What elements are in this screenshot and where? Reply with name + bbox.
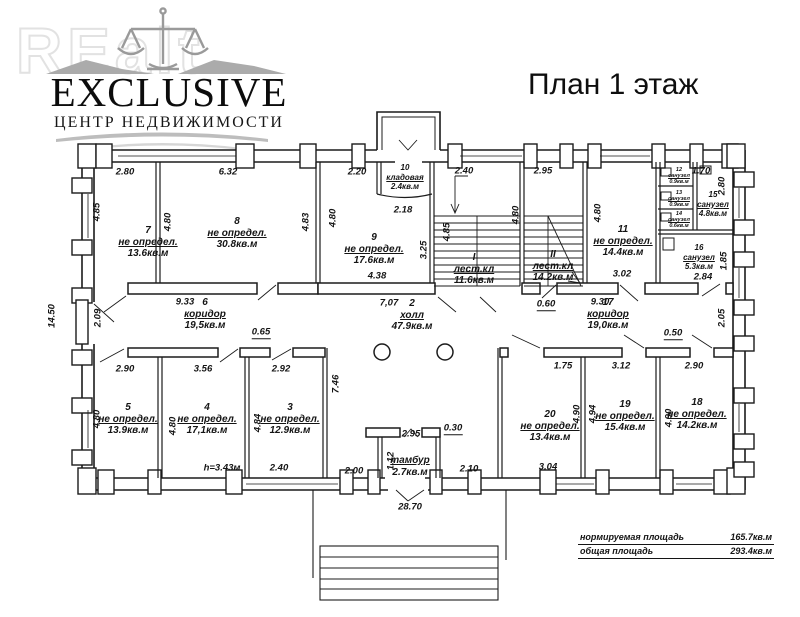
floor-plan-page: REalt EXCLUSIVE ЦЕНТР Н <box>0 0 800 617</box>
room-area: 17.6кв.м <box>344 255 403 267</box>
summary-row: общая площадь 293.4кв.м <box>578 545 774 559</box>
room-area: 14.2кв.м <box>533 272 574 284</box>
dim-m10: 3.56 <box>194 364 213 374</box>
dim-v10: 1.85 <box>719 252 729 271</box>
room-area: 30.8кв.м <box>207 239 266 251</box>
room-name: не определ. <box>118 237 177 249</box>
room-label-8: 8 не определ. 30.8кв.м <box>207 216 266 251</box>
dim-t7: 2.18 <box>394 205 413 215</box>
dim-m15: 2.90 <box>685 361 704 371</box>
dim-v8: 4.80 <box>593 204 603 223</box>
dim-v18: 1.12 <box>386 452 396 471</box>
dim-v14: 7.46 <box>331 375 341 394</box>
room-name: не определ. <box>344 244 403 256</box>
room-label-9: 9 не определ. 17.6кв.м <box>344 232 403 267</box>
room-label-18: 18 не определ. 14.2кв.м <box>667 397 726 432</box>
dim-b2: 0.30 <box>444 423 463 435</box>
dim-t6: 1.70 <box>692 166 711 176</box>
dim-m4: 9.30 <box>591 297 610 307</box>
dim-m14: 0.50 <box>664 328 683 340</box>
room-label-4: 4 не определ. 17,1кв.м <box>177 402 236 437</box>
dim-m13: 3.12 <box>612 361 631 371</box>
room-name: санузел <box>683 253 715 263</box>
room-label-19: 19 не определ. 15.4кв.м <box>595 399 654 434</box>
room-name: не определ. <box>593 236 652 248</box>
room-area: 5.3кв.м <box>683 262 715 272</box>
room-name: не определ. <box>207 228 266 240</box>
dim-b5: 2.40 <box>270 463 289 473</box>
room-number: 18 <box>667 397 726 409</box>
room-name: санузел <box>697 200 729 210</box>
dim-m6: 3.02 <box>613 269 632 279</box>
room-label-11: 11 не определ. 14.4кв.м <box>593 224 652 259</box>
room-name: коридор <box>587 309 629 321</box>
summary-value: 293.4кв.м <box>730 545 772 557</box>
room-area: 0.6кв.м <box>668 223 690 229</box>
summary-label: нормируемая площадь <box>580 531 684 543</box>
dim-b1: 2.95 <box>402 429 421 439</box>
dim-m5: 4.38 <box>368 271 387 281</box>
room-area: 11.6кв.м <box>454 275 494 287</box>
side-door-frame <box>76 300 88 344</box>
dim-t5: 2.95 <box>534 166 553 176</box>
room-number: 19 <box>595 399 654 411</box>
room-label-14: 14 санузел 0.6кв.м <box>668 211 690 229</box>
dim-b6: 3.04 <box>539 462 558 472</box>
dim-m3: 0.60 <box>537 299 556 311</box>
room-number: 4 <box>177 402 236 414</box>
room-area: 47.9кв.м <box>392 321 433 333</box>
room-number: 11 <box>593 224 652 236</box>
dim-v7: 4.80 <box>511 206 521 225</box>
room-area: 0.9кв.м <box>668 202 690 208</box>
room-area: 14.4кв.м <box>593 247 652 259</box>
room-area: 12.9кв.м <box>260 425 319 437</box>
room-area: 14.2кв.м <box>667 420 726 432</box>
dim-m9: 2.90 <box>116 364 135 374</box>
room-area: 13.9кв.м <box>98 425 157 437</box>
dim-v2: 4.80 <box>163 213 173 232</box>
dim-m2: 7,07 <box>380 298 399 308</box>
dim-t2: 6.32 <box>219 167 238 177</box>
room-name: кладовая <box>386 173 423 183</box>
room-label-10: 10 кладовая 2.4кв.м <box>386 163 423 192</box>
room-name: лест.кл <box>533 261 574 273</box>
room-name: лест.кл <box>454 264 494 276</box>
room-label-13: 13 санузел 0.9кв.м <box>668 190 690 208</box>
note-ceiling-height: h=3.43м <box>204 463 241 473</box>
dim-m11: 2.92 <box>272 364 291 374</box>
room-number: 3 <box>260 402 319 414</box>
room-label-stair-1: I лест.кл 11.6кв.м <box>454 252 494 287</box>
dim-v11-overall: 14.50 <box>47 304 57 328</box>
room-area: 15.4кв.м <box>595 422 654 434</box>
dim-v19: 4.90 <box>572 405 582 424</box>
dim-v21: 4.90 <box>664 409 674 428</box>
dim-v12: 2.09 <box>93 309 103 328</box>
dim-v20: 4.94 <box>588 405 598 424</box>
dim-m7: 2.84 <box>694 272 713 282</box>
room-number: 10 <box>386 163 423 173</box>
dim-v16: 4.80 <box>168 417 178 436</box>
room-label-3: 3 не определ. 12.9кв.м <box>260 402 319 437</box>
hall-columns <box>374 344 453 360</box>
dim-v4: 4.80 <box>328 209 338 228</box>
summary-row: нормируемая площадь 165.7кв.м <box>578 531 774 545</box>
room-number: 5 <box>98 402 157 414</box>
room-name: не определ. <box>595 411 654 423</box>
dim-b7: 28.70 <box>398 502 422 512</box>
room-area: 13.6кв.м <box>118 248 177 260</box>
room-area: 2.4кв.м <box>386 182 423 192</box>
room-label-stair-2: II лест.кл 14.2кв.м <box>533 249 574 284</box>
dim-v13: 2.05 <box>717 309 727 328</box>
room-area: 13.4кв.м <box>520 432 579 444</box>
dim-v1: 4.85 <box>92 203 102 222</box>
dim-b3: 2.00 <box>345 466 364 476</box>
dim-v9: 2.80 <box>717 177 727 196</box>
room-area: 19,0кв.м <box>587 320 629 332</box>
dim-t3: 2.20 <box>348 167 367 177</box>
room-name: коридор <box>184 309 226 321</box>
summary-label: общая площадь <box>580 545 653 557</box>
dim-v15: 4.80 <box>92 410 102 429</box>
room-name: не определ. <box>177 414 236 426</box>
dim-v17: 4.84 <box>253 414 263 433</box>
dim-t4: 2.40 <box>455 166 474 176</box>
dim-v5: 3.25 <box>419 241 429 260</box>
room-number: 8 <box>207 216 266 228</box>
room-label-12: 12 санузел 0.9кв.м <box>668 167 690 185</box>
dim-t1: 2.80 <box>116 167 135 177</box>
dim-b4: 2.10 <box>460 464 479 474</box>
room-name: не определ. <box>667 409 726 421</box>
summary-value: 165.7кв.м <box>730 531 772 543</box>
room-number: II <box>533 249 574 261</box>
dim-m12: 1.75 <box>554 361 573 371</box>
room-number: 9 <box>344 232 403 244</box>
room-number: I <box>454 252 494 264</box>
dim-m8: 0.65 <box>252 327 271 339</box>
dim-v3: 4.83 <box>301 213 311 232</box>
room-label-5: 5 не определ. 13.9кв.м <box>98 402 157 437</box>
area-summary: нормируемая площадь 165.7кв.м общая площ… <box>578 531 774 559</box>
room-area: 17,1кв.м <box>177 425 236 437</box>
room-area: 4.8кв.м <box>697 209 729 219</box>
room-area: 0.9кв.м <box>668 179 690 185</box>
room-name: холл <box>392 310 433 322</box>
dim-v6: 4.85 <box>442 223 452 242</box>
room-number: 16 <box>683 243 715 253</box>
room-name: не определ. <box>260 414 319 426</box>
room-label-16: 16 санузел 5.3кв.м <box>683 243 715 272</box>
room-name: не определ. <box>98 414 157 426</box>
room-area: 19,5кв.м <box>184 320 226 332</box>
dim-m1: 9.33 <box>176 297 195 307</box>
